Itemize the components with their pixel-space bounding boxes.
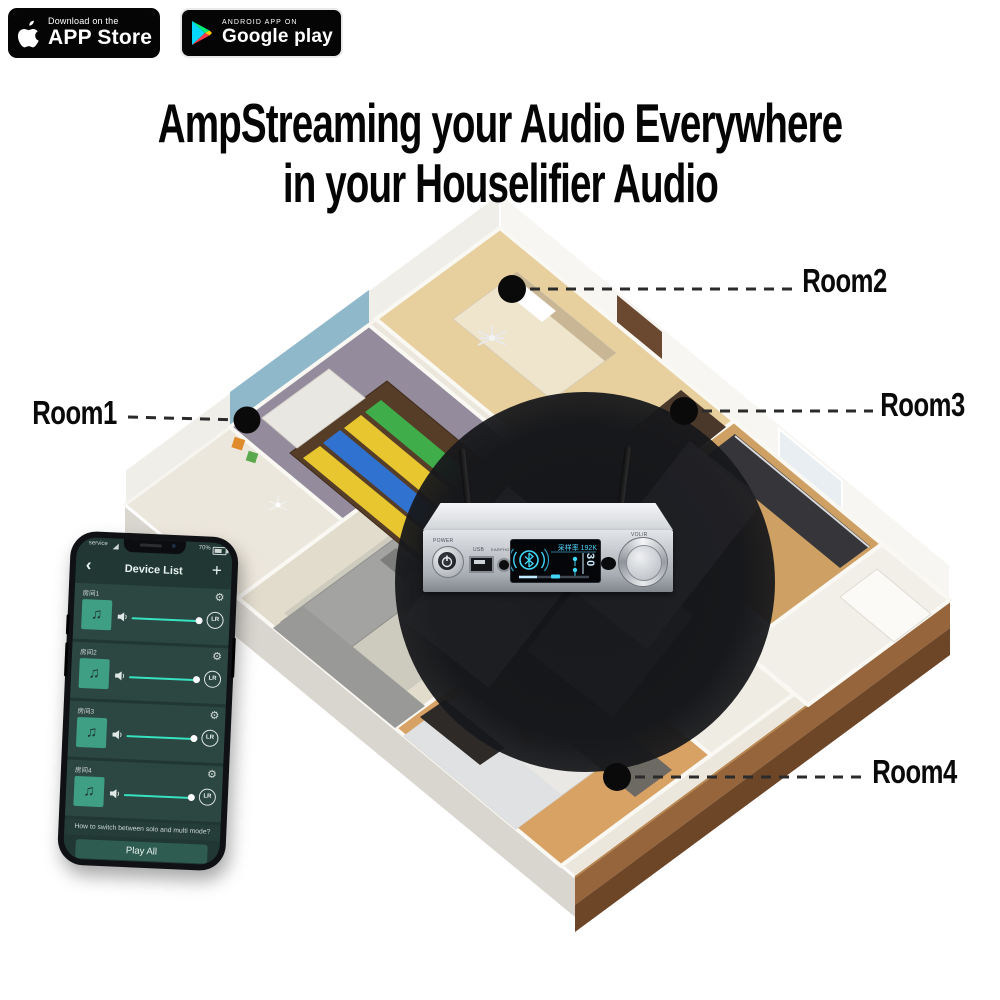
annotation-overlay: [0, 0, 1000, 1000]
room2-label: Room2: [800, 266, 889, 297]
room2-dot: [498, 275, 526, 303]
room1-dot: [234, 407, 261, 434]
room1-leader-line: [128, 417, 243, 420]
room1-label: Room1: [30, 398, 119, 429]
room4-dot: [603, 763, 631, 791]
room4-label: Room4: [870, 757, 959, 788]
room3-dot: [670, 397, 698, 425]
room3-label: Room3: [878, 390, 967, 421]
